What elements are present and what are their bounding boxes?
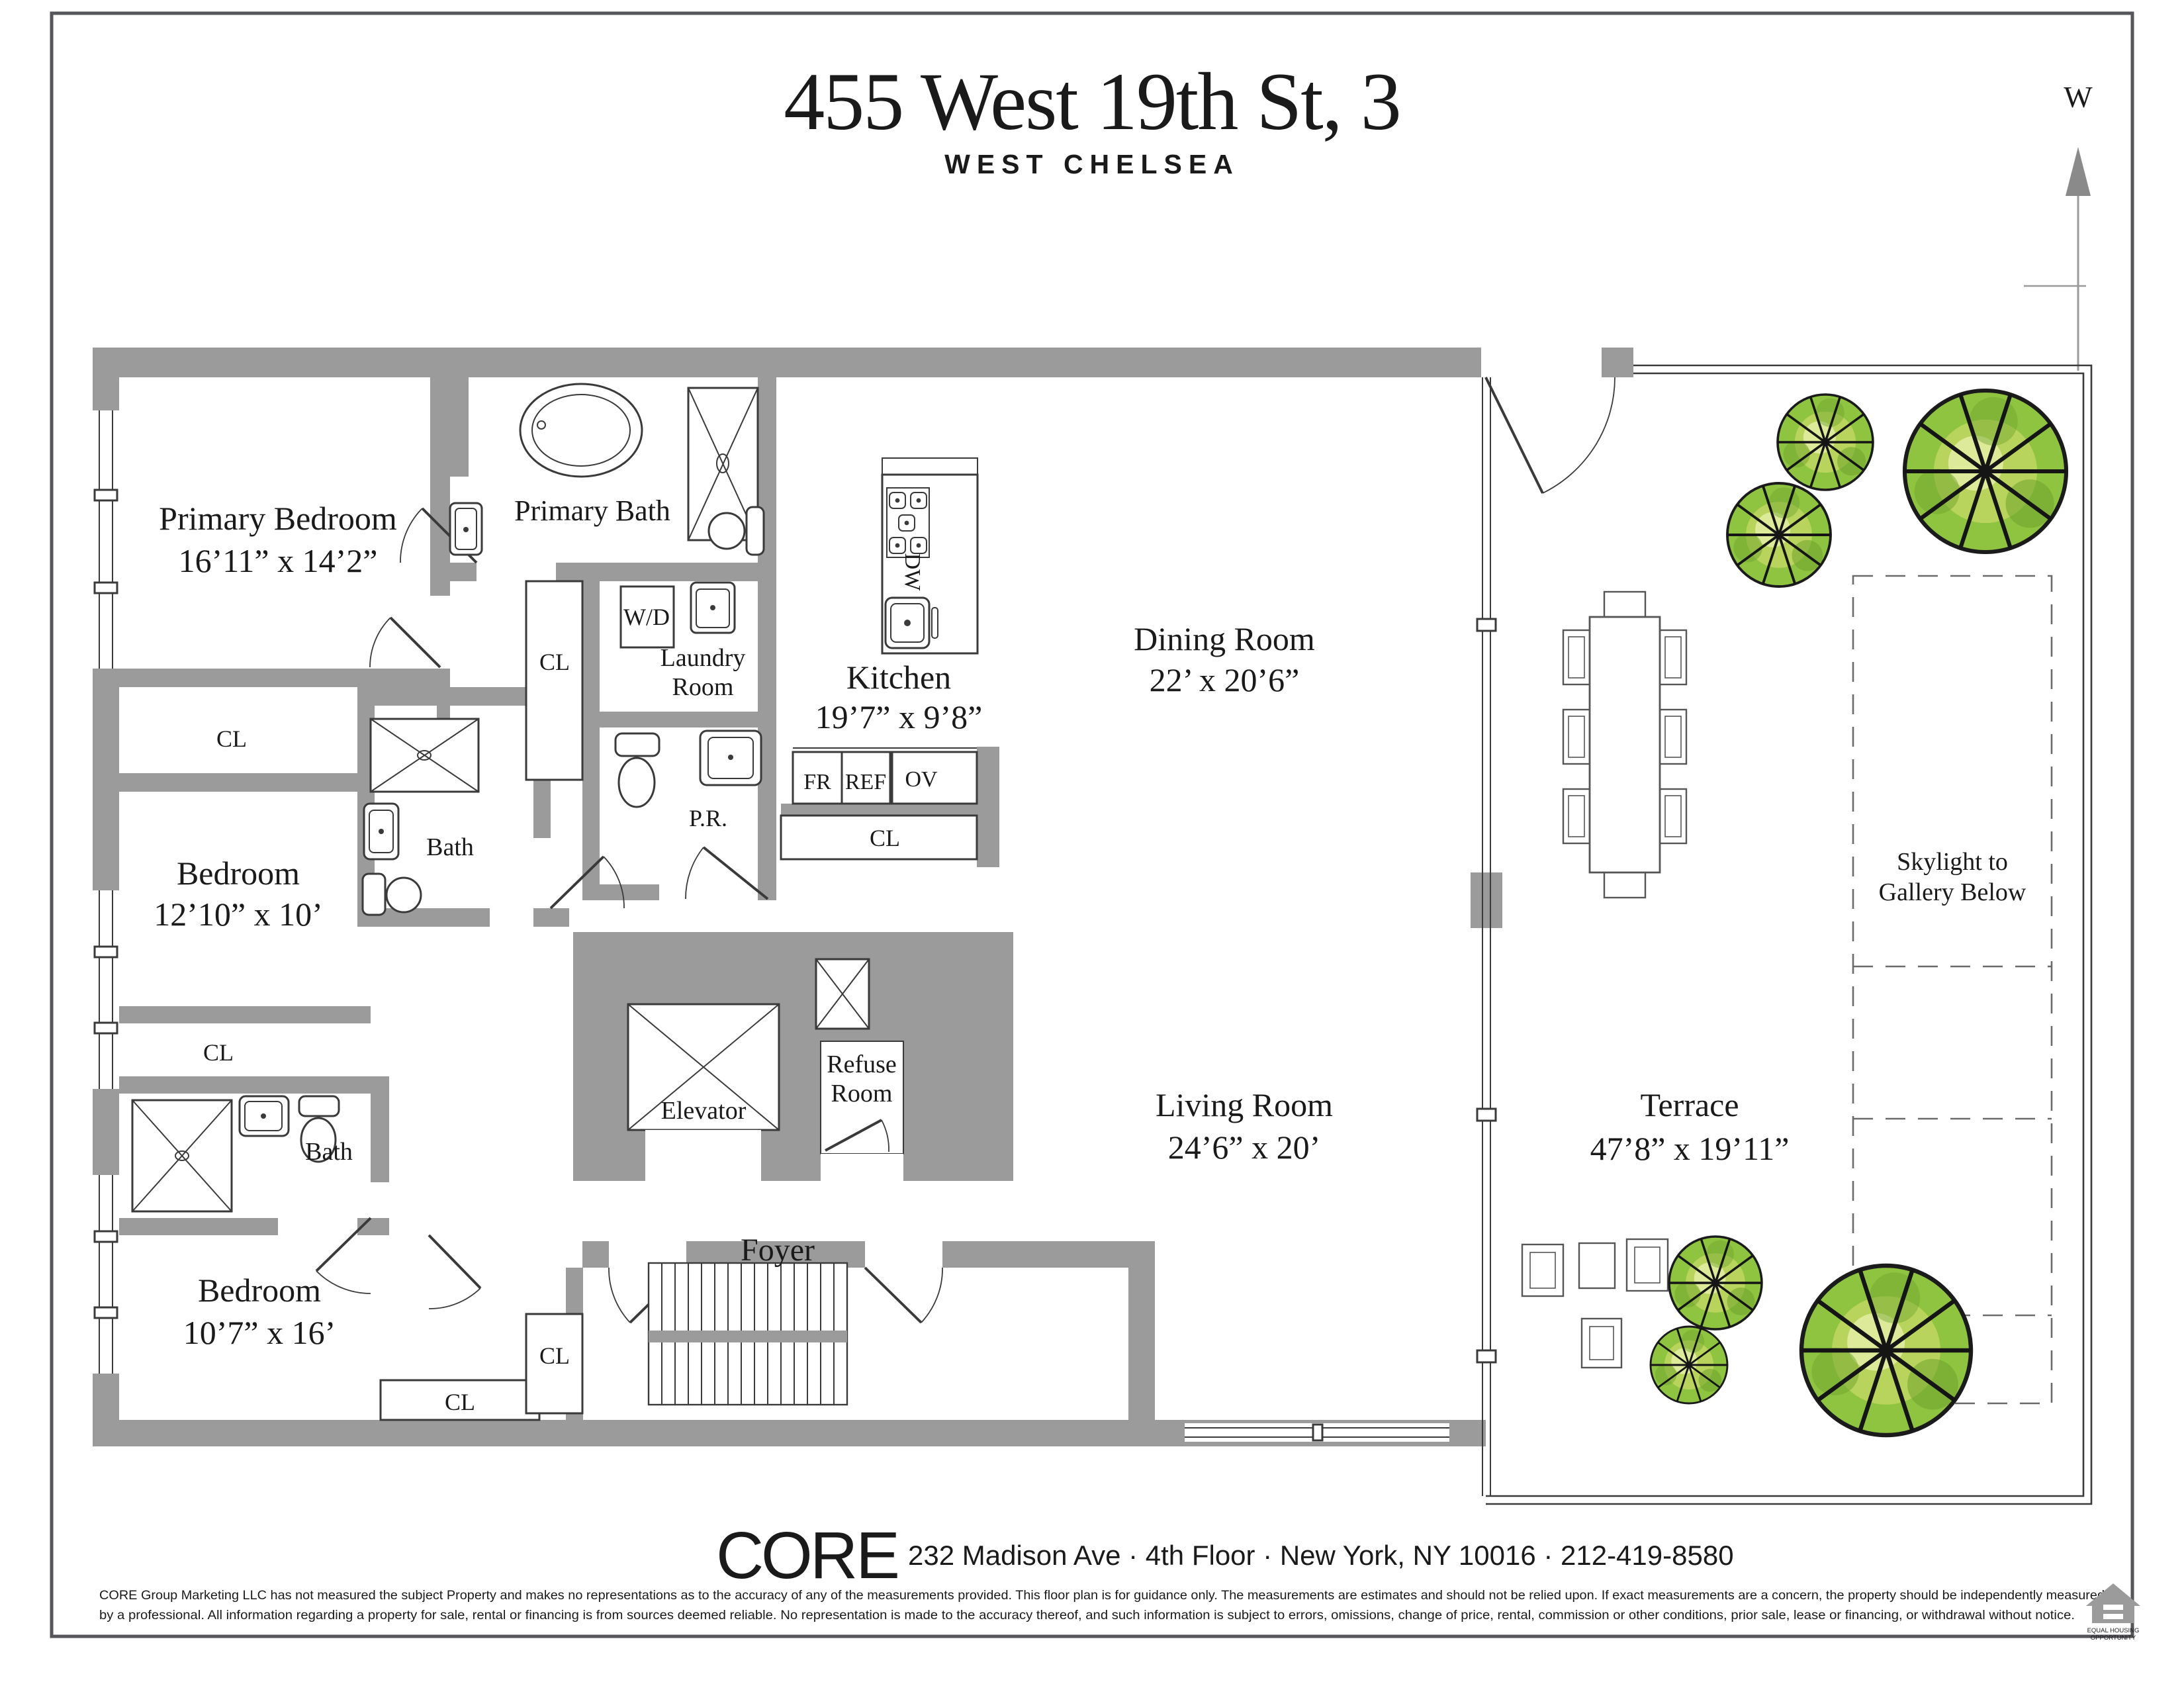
living-room-label: Living Room <box>1156 1086 1333 1123</box>
trees <box>1651 391 2066 1435</box>
bath2-label: Bath <box>305 1138 353 1166</box>
pr-sink-icon <box>700 731 761 785</box>
closet-label: CL <box>870 825 900 851</box>
window-icon <box>93 410 119 669</box>
disclaimer-line-2: by a professional. All information regar… <box>99 1608 2075 1622</box>
dining-room-label: Dining Room <box>1134 620 1315 657</box>
bathtub-icon <box>520 384 642 477</box>
skylight-label-1: Skylight to <box>1897 848 2008 876</box>
bedroom2-dims: 12’10” x 10’ <box>154 896 323 933</box>
staircase <box>649 1263 847 1405</box>
pr-toilet-icon <box>615 733 659 807</box>
compass-arrowhead-icon <box>2066 147 2091 196</box>
foyer-label: Foyer <box>741 1233 815 1268</box>
compass-icon: W <box>2024 80 2093 371</box>
core-logo-o: O <box>761 1519 811 1593</box>
primary-bedroom-dims: 16’11” x 14’2” <box>179 542 378 579</box>
tree-icon <box>1669 1237 1762 1329</box>
kitchen-label: Kitchen <box>846 659 951 696</box>
laundry-sink-icon <box>691 583 735 633</box>
laundry-label-1: Laundry <box>660 644 746 672</box>
island-sink-icon <box>886 598 938 648</box>
pr-label: P.R. <box>689 805 727 831</box>
terrace-label: Terrace <box>1640 1086 1739 1123</box>
core-logo: C O RE <box>716 1519 898 1593</box>
skylight-label-2: Gallery Below <box>1879 878 2026 906</box>
bedroom2-label: Bedroom <box>177 855 300 892</box>
primary-bath-label: Primary Bath <box>514 494 670 527</box>
core-logo-re: RE <box>810 1519 898 1593</box>
footer-address: 232 Madison Ave · 4th Floor · New York, … <box>908 1540 1734 1571</box>
tree-icon <box>1801 1266 1971 1435</box>
bath1-fixtures <box>363 719 478 915</box>
sink-icon <box>450 503 482 555</box>
bedroom3-label: Bedroom <box>198 1272 321 1309</box>
laundry-label-2: Room <box>672 673 734 701</box>
elevator-core <box>573 932 1013 1181</box>
dining-room-dims: 22’ x 20’6” <box>1150 661 1300 698</box>
bedroom3-dims: 10’7” x 16’ <box>183 1314 336 1351</box>
wd-label: W/D <box>623 604 670 630</box>
kitchen-dims: 19’7” x 9’8” <box>815 698 983 735</box>
disclaimer-line-1: CORE Group Marketing LLC has not measure… <box>99 1588 2105 1603</box>
closet-label: CL <box>216 726 247 752</box>
window-icons-left <box>93 410 119 1374</box>
tree-icon <box>1727 483 1831 586</box>
page-subtitle: WEST CHELSEA <box>944 149 1240 179</box>
floorplan-page: 455 West 19th St, 3 WEST CHELSEA W <box>0 0 2184 1688</box>
title-block: 455 West 19th St, 3 WEST CHELSEA <box>784 56 1400 179</box>
living-room-dims: 24’6” x 20’ <box>1168 1129 1321 1166</box>
ref-label: REF <box>845 770 886 794</box>
dw-label: DW <box>900 553 925 592</box>
window-icon-bottom <box>1185 1423 1449 1442</box>
tree-icon <box>1778 395 1873 490</box>
terrace-lounge-chairs <box>1522 1239 1668 1368</box>
page-title: 455 West 19th St, 3 <box>784 56 1400 147</box>
equal-housing-text-2: OPPORTUNITY <box>2091 1634 2136 1642</box>
glass-wall <box>1477 377 1496 1496</box>
elevator-label: Elevator <box>661 1097 747 1125</box>
window-icon <box>93 1175 119 1374</box>
primary-bedroom-label: Primary Bedroom <box>159 500 397 537</box>
compass-west-label: W <box>2064 80 2093 114</box>
fr-label: FR <box>803 770 831 794</box>
closet-label: CL <box>539 649 570 675</box>
closet-box <box>526 581 582 780</box>
refuse-label-2: Room <box>831 1080 893 1107</box>
bath1-label: Bath <box>426 833 474 861</box>
footer: C O RE 232 Madison Ave · 4th Floor · New… <box>99 1519 2140 1642</box>
core-logo-c: C <box>716 1519 762 1593</box>
refuse-label-1: Refuse <box>827 1051 897 1078</box>
closet-label: CL <box>539 1342 570 1369</box>
dining-table-set <box>1563 592 1686 898</box>
equal-housing-text-1: EQUAL HOUSING <box>2087 1627 2140 1634</box>
tree-icon <box>1651 1327 1727 1403</box>
window-icon <box>93 890 119 1089</box>
floorplan-canvas: 455 West 19th St, 3 WEST CHELSEA W <box>0 0 2184 1688</box>
tree-icon <box>1905 391 2066 552</box>
closet-label: CL <box>445 1389 475 1415</box>
ov-label: OV <box>905 767 938 792</box>
terrace-dims: 47’8” x 19’11” <box>1590 1130 1790 1167</box>
closet-label: CL <box>203 1039 234 1066</box>
kitchen-island <box>882 458 978 653</box>
